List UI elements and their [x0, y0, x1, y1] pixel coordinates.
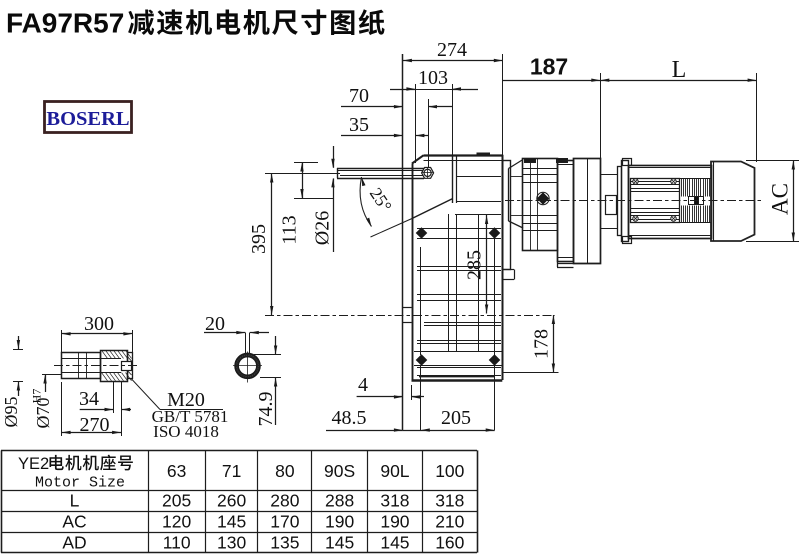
svg-text:4: 4	[358, 374, 368, 396]
svg-text:L: L	[70, 491, 80, 511]
svg-text:103: 103	[418, 67, 448, 89]
svg-text:145: 145	[380, 533, 409, 553]
svg-text:170: 170	[270, 512, 299, 532]
svg-text:300: 300	[84, 313, 114, 335]
svg-text:210: 210	[435, 512, 464, 532]
svg-text:Ø95: Ø95	[1, 397, 21, 428]
svg-text:260: 260	[217, 491, 246, 511]
svg-text:Motor Size: Motor Size	[35, 475, 125, 492]
svg-text:35: 35	[349, 114, 369, 136]
svg-text:178: 178	[531, 329, 553, 359]
svg-text:ISO 4018: ISO 4018	[153, 422, 219, 441]
svg-text:AC: AC	[62, 512, 86, 532]
svg-text:71: 71	[222, 461, 241, 481]
svg-text:74.9: 74.9	[255, 392, 277, 427]
svg-text:90L: 90L	[380, 461, 409, 481]
svg-text:288: 288	[325, 491, 354, 511]
svg-text:318: 318	[435, 491, 464, 511]
svg-text:70: 70	[349, 85, 369, 107]
svg-text:145: 145	[325, 533, 354, 553]
svg-text:20: 20	[205, 313, 225, 335]
svg-text:205: 205	[441, 407, 471, 429]
svg-text:L: L	[672, 57, 687, 83]
svg-text:80: 80	[275, 461, 295, 481]
svg-text:YE2: YE2	[18, 455, 49, 473]
svg-text:187: 187	[530, 54, 568, 80]
svg-text:135: 135	[270, 533, 299, 553]
svg-text:110: 110	[163, 533, 191, 553]
svg-text:48.5: 48.5	[332, 407, 367, 429]
svg-text:205: 205	[162, 491, 191, 511]
svg-text:285: 285	[464, 250, 486, 280]
svg-text:AC: AC	[768, 183, 793, 215]
svg-text:FA97R57: FA97R57	[6, 8, 124, 39]
svg-text:BOSERL: BOSERL	[46, 108, 129, 130]
svg-text:113: 113	[279, 215, 301, 244]
svg-text:130: 130	[217, 533, 246, 553]
svg-text:Ø26: Ø26	[312, 211, 334, 245]
svg-text:AD: AD	[62, 533, 86, 553]
svg-text:190: 190	[380, 512, 409, 532]
svg-text:145: 145	[217, 512, 246, 532]
svg-text:120: 120	[162, 512, 191, 532]
svg-text:160: 160	[435, 533, 464, 553]
svg-text:395: 395	[248, 224, 270, 254]
svg-text:318: 318	[380, 491, 409, 511]
svg-text:H7: H7	[30, 389, 44, 404]
svg-text:274: 274	[437, 39, 467, 61]
svg-text:90S: 90S	[324, 461, 355, 481]
svg-text:34: 34	[79, 388, 99, 410]
svg-text:63: 63	[167, 461, 186, 481]
svg-text:100: 100	[435, 461, 464, 481]
svg-text:270: 270	[80, 414, 110, 436]
svg-text:190: 190	[325, 512, 354, 532]
svg-text:280: 280	[270, 491, 299, 511]
